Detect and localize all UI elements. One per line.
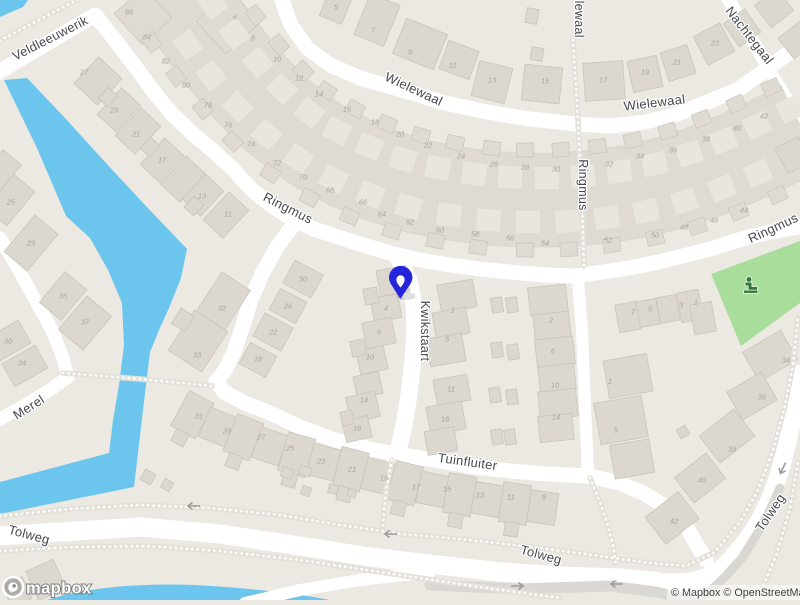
svg-text:mapbox: mapbox <box>26 580 92 598</box>
svg-text:25: 25 <box>285 444 295 453</box>
svg-text:46: 46 <box>710 216 719 225</box>
svg-text:13: 13 <box>488 76 497 85</box>
svg-text:39: 39 <box>728 445 737 454</box>
svg-text:22: 22 <box>423 141 433 150</box>
svg-text:30: 30 <box>4 337 13 346</box>
svg-text:16: 16 <box>441 415 450 424</box>
svg-text:66: 66 <box>359 198 368 207</box>
svg-text:26: 26 <box>283 302 293 311</box>
svg-text:62: 62 <box>406 218 415 227</box>
svg-text:Ringmus: Ringmus <box>576 159 590 210</box>
svg-text:74: 74 <box>247 140 255 149</box>
svg-text:50: 50 <box>651 231 660 240</box>
svg-text:84: 84 <box>143 33 151 42</box>
svg-text:35: 35 <box>59 292 68 301</box>
svg-text:78: 78 <box>204 101 213 110</box>
svg-text:34: 34 <box>18 359 26 368</box>
svg-text:21: 21 <box>131 130 140 139</box>
svg-text:21: 21 <box>347 465 356 474</box>
svg-text:18: 18 <box>254 355 263 364</box>
svg-text:19: 19 <box>380 474 389 483</box>
svg-text:29: 29 <box>26 239 36 248</box>
svg-text:40: 40 <box>698 476 707 485</box>
svg-text:44: 44 <box>740 206 748 215</box>
svg-text:40: 40 <box>733 124 742 133</box>
svg-text:1: 1 <box>451 306 455 315</box>
svg-text:24: 24 <box>456 152 465 161</box>
svg-text:19: 19 <box>641 68 650 77</box>
svg-text:10: 10 <box>273 55 282 64</box>
svg-text:27: 27 <box>79 68 89 77</box>
svg-text:42: 42 <box>670 517 679 526</box>
svg-text:52: 52 <box>604 236 613 245</box>
svg-text:64: 64 <box>378 210 386 219</box>
svg-text:1: 1 <box>694 298 698 307</box>
svg-text:27: 27 <box>256 433 266 442</box>
svg-text:Kwikstaart: Kwikstaart <box>418 301 432 362</box>
svg-text:30: 30 <box>299 275 308 284</box>
svg-text:22: 22 <box>268 328 278 337</box>
svg-text:86: 86 <box>125 8 134 17</box>
svg-text:36: 36 <box>758 393 767 402</box>
svg-text:76: 76 <box>224 121 233 130</box>
svg-text:38: 38 <box>702 135 711 144</box>
svg-text:34: 34 <box>636 152 644 161</box>
svg-text:20: 20 <box>395 130 405 139</box>
svg-text:56: 56 <box>506 234 515 243</box>
svg-text:23: 23 <box>109 106 119 115</box>
svg-text:28: 28 <box>520 163 530 172</box>
svg-text:17: 17 <box>412 483 421 492</box>
svg-text:37: 37 <box>81 318 90 327</box>
svg-text:13: 13 <box>476 491 485 500</box>
svg-text:18: 18 <box>371 118 380 127</box>
svg-text:25: 25 <box>6 198 16 207</box>
svg-text:11: 11 <box>224 210 232 219</box>
svg-text:32: 32 <box>605 160 614 169</box>
svg-text:82: 82 <box>162 57 171 66</box>
svg-text:16: 16 <box>343 105 352 114</box>
svg-text:4: 4 <box>384 304 388 313</box>
svg-text:15: 15 <box>541 77 550 86</box>
svg-text:32: 32 <box>218 304 227 313</box>
svg-text:10: 10 <box>366 353 375 362</box>
svg-text:14: 14 <box>360 396 368 405</box>
svg-text:58: 58 <box>471 230 480 239</box>
svg-text:31: 31 <box>195 412 203 421</box>
svg-text:80: 80 <box>182 81 191 90</box>
svg-text:14: 14 <box>552 413 560 422</box>
svg-text:1: 1 <box>608 377 612 386</box>
svg-text:Wielewaal: Wielewaal <box>572 0 586 38</box>
svg-text:11: 11 <box>447 385 455 394</box>
svg-text:11: 11 <box>507 493 515 502</box>
svg-text:54: 54 <box>541 239 549 248</box>
svg-text:17: 17 <box>158 156 167 165</box>
svg-text:21: 21 <box>672 58 681 67</box>
svg-text:13: 13 <box>198 192 207 201</box>
svg-text:36: 36 <box>669 146 678 155</box>
svg-text:68: 68 <box>326 186 335 195</box>
svg-text:29: 29 <box>222 427 232 436</box>
svg-text:18: 18 <box>353 424 362 433</box>
svg-text:© Mapbox © OpenStreetMap: © Mapbox © OpenStreetMap <box>671 587 800 599</box>
svg-text:23: 23 <box>316 457 326 466</box>
svg-text:42: 42 <box>760 112 769 121</box>
svg-text:12: 12 <box>295 74 304 83</box>
svg-text:17: 17 <box>599 76 608 85</box>
svg-text:10: 10 <box>551 381 560 390</box>
svg-text:60: 60 <box>436 226 445 235</box>
svg-text:72: 72 <box>273 159 282 168</box>
svg-text:33: 33 <box>193 351 202 360</box>
svg-text:11: 11 <box>449 61 457 70</box>
svg-text:70: 70 <box>299 173 308 182</box>
svg-text:30: 30 <box>552 165 561 174</box>
svg-text:48: 48 <box>680 223 689 232</box>
svg-text:14: 14 <box>315 90 323 99</box>
svg-text:2: 2 <box>548 316 554 325</box>
svg-text:26: 26 <box>489 160 499 169</box>
svg-text:23: 23 <box>710 39 720 48</box>
svg-text:34: 34 <box>782 356 790 365</box>
svg-text:15: 15 <box>443 485 452 494</box>
